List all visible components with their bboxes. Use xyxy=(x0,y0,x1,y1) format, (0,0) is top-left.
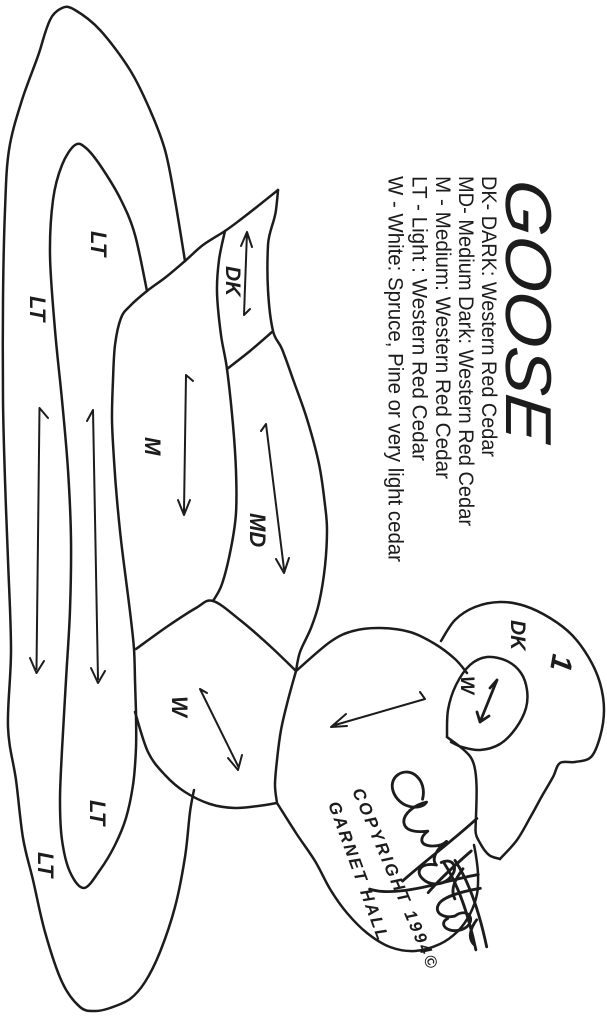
svg-text:LT - Light : Western Red Cedar: LT - Light : Western Red Cedar xyxy=(408,176,432,461)
svg-text:M: M xyxy=(140,437,165,456)
svg-text:LT: LT xyxy=(25,296,50,323)
svg-text:DK- DARK: Western Red Cedar: DK- DARK: Western Red Cedar xyxy=(477,176,501,457)
svg-text:DK: DK xyxy=(221,266,244,298)
svg-text:LT: LT xyxy=(85,800,110,827)
svg-text:W: W xyxy=(167,696,192,719)
svg-text:LT: LT xyxy=(33,852,58,879)
svg-text:W: W xyxy=(456,676,477,696)
svg-text:M - Medium: Western Red Cedar: M - Medium: Western Red Cedar xyxy=(431,176,455,479)
svg-text:MD- Medium Dark: Western Red C: MD- Medium Dark: Western Red Cedar xyxy=(454,176,478,526)
svg-text:MD: MD xyxy=(245,513,270,547)
svg-text:GOOSE: GOOSE xyxy=(492,177,565,448)
svg-text:W - White: Spruce, Pine or ver: W - White: Spruce, Pine or very light ce… xyxy=(384,176,408,562)
svg-text:LT: LT xyxy=(86,231,111,258)
svg-text:DK: DK xyxy=(506,620,529,652)
svg-text:1: 1 xyxy=(543,652,578,674)
